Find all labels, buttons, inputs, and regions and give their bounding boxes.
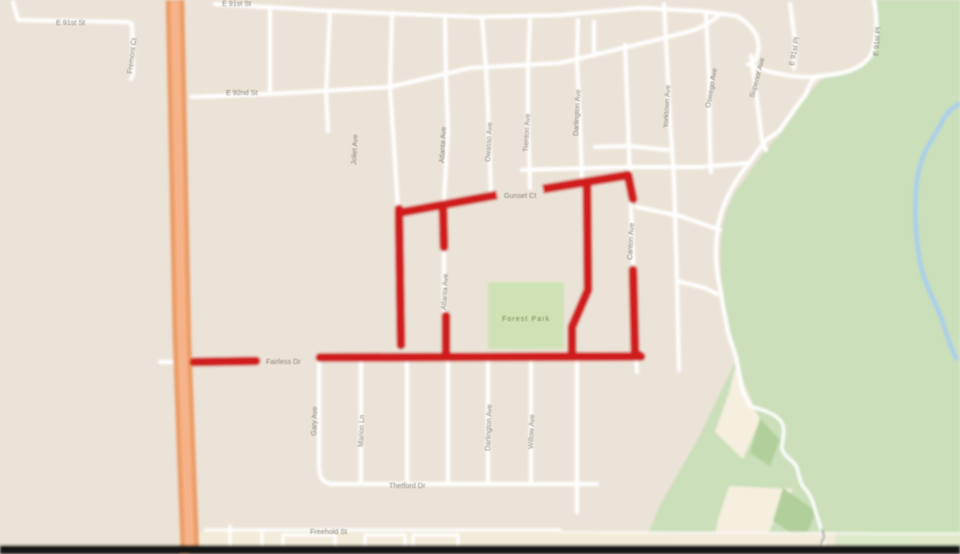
svg-text:Freehold St: Freehold St	[310, 527, 347, 536]
svg-text:Fairless Dr: Fairless Dr	[266, 357, 301, 366]
svg-text:E 92nd St: E 92nd St	[226, 88, 258, 97]
svg-text:Atlanta Ave: Atlanta Ave	[439, 273, 450, 310]
svg-text:Thetford Dr: Thetford Dr	[389, 481, 426, 490]
svg-text:Darlington Ave: Darlington Ave	[483, 404, 494, 451]
svg-text:Willow Ave: Willow Ave	[526, 414, 536, 449]
svg-text:Forest Park: Forest Park	[502, 316, 550, 323]
svg-text:Atlanta Ave: Atlanta Ave	[437, 126, 448, 163]
svg-text:Gary Ave: Gary Ave	[309, 406, 319, 436]
svg-text:Marion Ln: Marion Ln	[356, 415, 366, 447]
svg-text:E 91st St: E 91st St	[222, 0, 251, 8]
svg-text:Gunset Ct: Gunset Ct	[504, 191, 536, 200]
svg-text:E 91st St: E 91st St	[56, 18, 85, 27]
svg-text:Joliet Ave: Joliet Ave	[349, 134, 360, 165]
